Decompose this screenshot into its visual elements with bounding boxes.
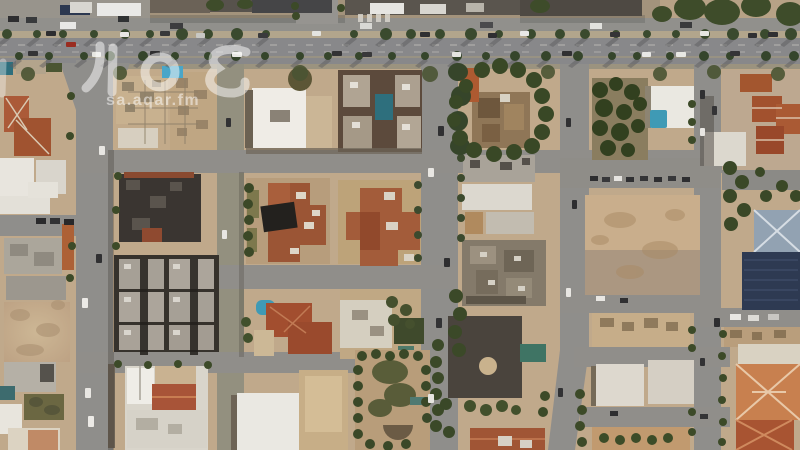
svg-text:sa.aqar.fm: sa.aqar.fm <box>106 92 200 109</box>
